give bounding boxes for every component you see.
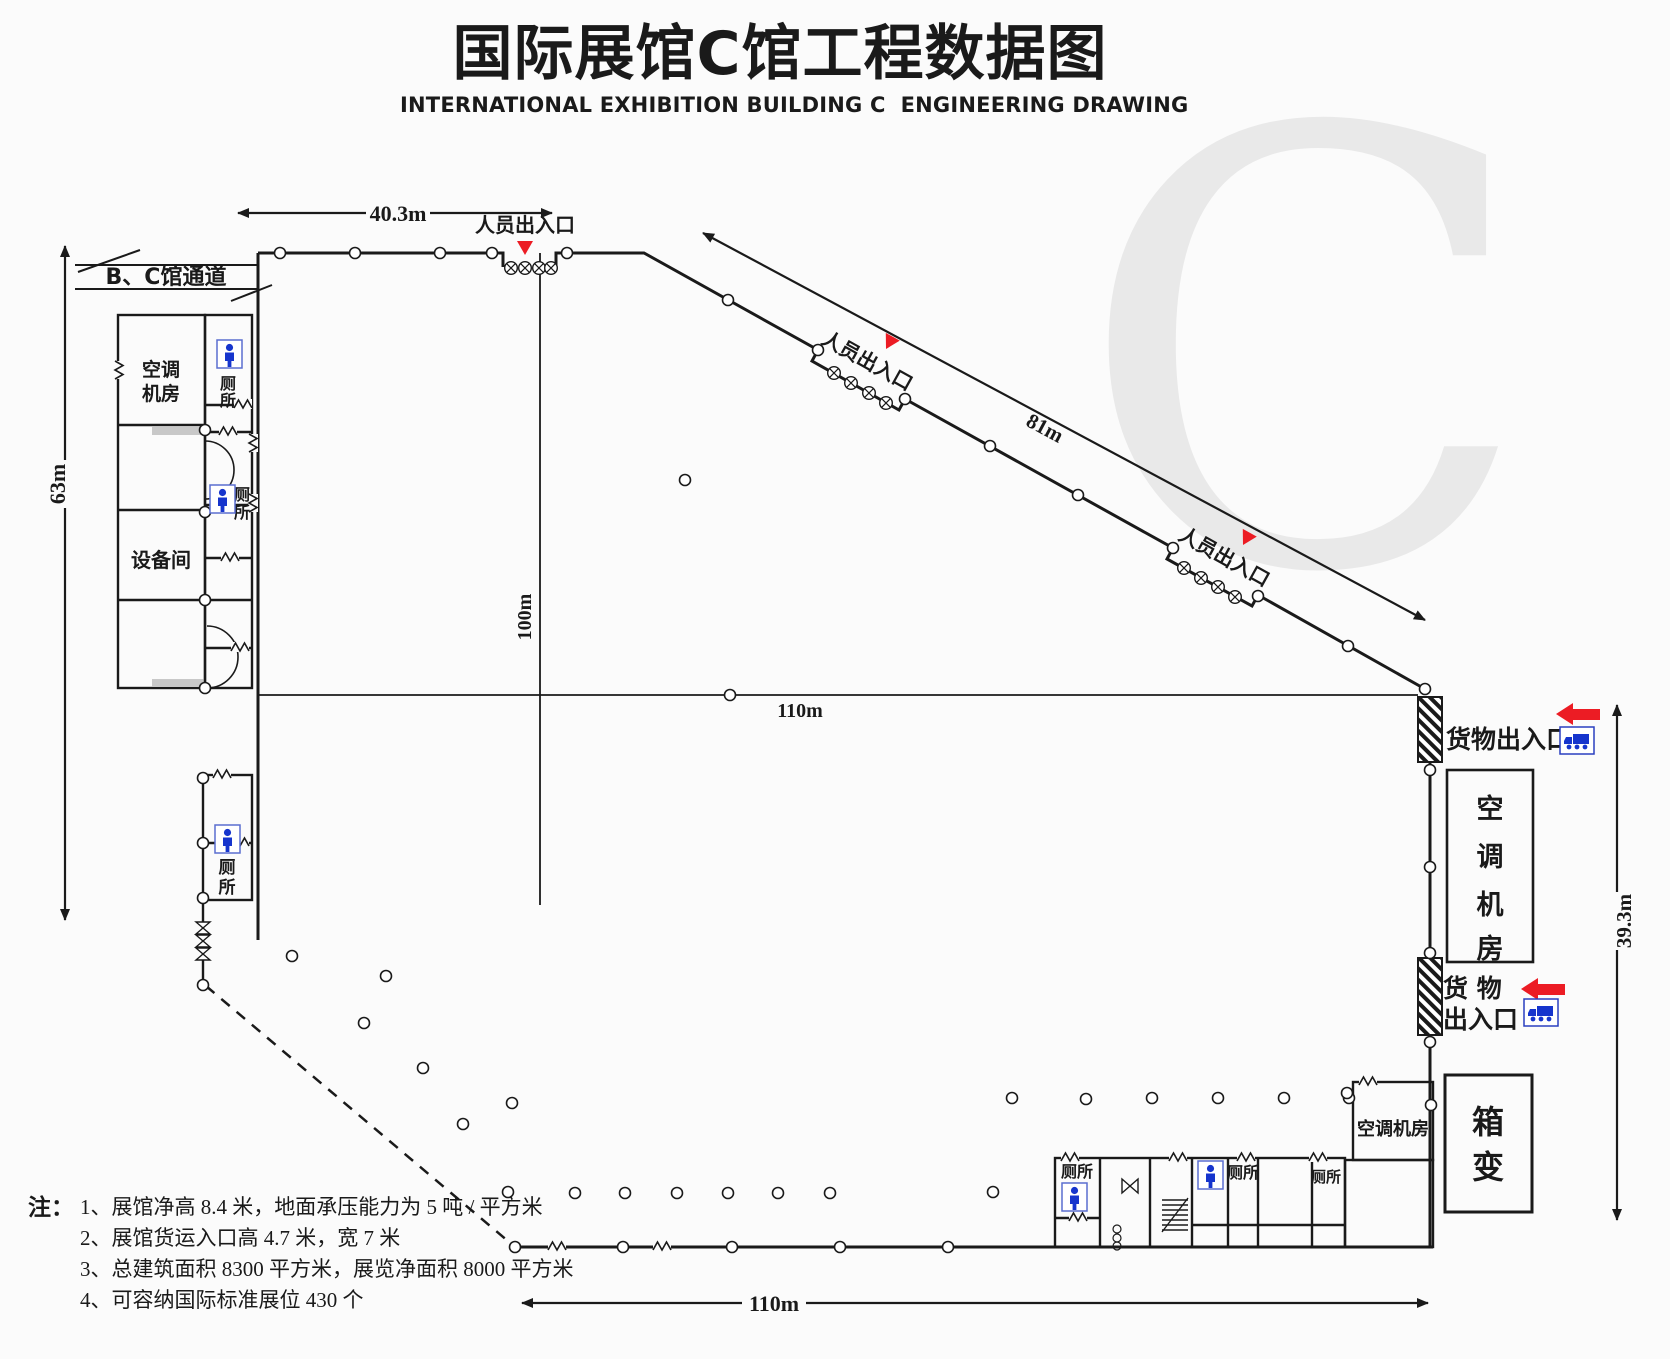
dim-left-height: 63m — [45, 464, 70, 504]
floor-plan: 40.3m 63m 100m 110m 81m 39.3m 110m B、C馆通… — [0, 0, 1670, 1359]
toilet4-label: 厕所 — [1061, 1162, 1093, 1181]
column-markers — [198, 248, 1437, 1253]
ac-room-right-char4: 房 — [1477, 934, 1504, 965]
dim-top-width: 40.3m — [370, 201, 427, 226]
ac-room-right-char1: 空 — [1477, 793, 1504, 825]
title-block: 国际展馆C馆工程数据图 INTERNATIONAL EXHIBITION BUI… — [400, 20, 1160, 117]
dim-right-height: 39.3m — [1612, 893, 1636, 948]
cargo-entrance-label-1: 货物出入口 — [1446, 725, 1571, 754]
ac-room-right-char2: 调 — [1477, 842, 1504, 873]
person-icon — [217, 340, 242, 368]
note-2: 2、展馆货运入口高 4.7 米，宽 7 米 — [80, 1223, 574, 1254]
grey-strip-1 — [152, 427, 205, 435]
passage-label: B、C馆通道 — [106, 264, 227, 290]
grey-strip-2 — [152, 679, 205, 687]
dim-bottom-width: 110m — [749, 1291, 799, 1316]
toilet3-char1: 厕 — [219, 858, 236, 878]
hall-walls — [206, 253, 1433, 1247]
personnel-entrance-1: 人员出入口 — [475, 213, 575, 274]
ac-room-topleft-line2: 机房 — [142, 382, 180, 405]
equipment-room-label: 设备间 — [131, 548, 191, 572]
dim-diagonal: 81m — [1022, 408, 1068, 448]
ac-room-small-label: 空调机房 — [1357, 1118, 1429, 1140]
stairs — [1162, 1198, 1188, 1232]
cargo-entrance-2: 货 物 出入口 — [1443, 974, 1565, 1034]
entrance-arrow-icon — [1236, 529, 1257, 549]
notes-prefix: 注： — [28, 1192, 74, 1223]
person-icon — [1062, 1183, 1087, 1211]
cargo-entrance-label-2a: 货 物 — [1443, 974, 1502, 1003]
person-icon — [215, 825, 240, 853]
toilet1-char2: 所 — [220, 391, 236, 410]
toilet-icons — [210, 340, 1223, 1211]
note-4: 4、可容纳国际标准展位 430 个 — [80, 1285, 574, 1316]
page-subtitle: INTERNATIONAL EXHIBITION BUILDING C ENGI… — [400, 93, 1160, 117]
ac-room-right-char3: 机 — [1477, 890, 1504, 921]
ac-room-topleft-line1: 空调 — [142, 358, 180, 381]
truck-icon — [1524, 999, 1558, 1026]
box-transformer-char1: 箱 — [1472, 1103, 1504, 1141]
page-title: 国际展馆C馆工程数据图 — [400, 20, 1160, 89]
dim-hall-width: 100m — [514, 593, 536, 640]
door-notches — [114, 361, 1377, 1251]
person-icon — [1198, 1161, 1223, 1189]
turnstile-row-1 — [505, 262, 558, 275]
cargo-door-2 — [1418, 958, 1442, 1035]
cargo-arrow-icon — [1521, 978, 1565, 1000]
cargo-entrance-1: 货物出入口 — [1446, 703, 1600, 754]
toilet2-char2: 所 — [234, 503, 250, 522]
toilet6-label: 厕所 — [1311, 1168, 1341, 1186]
toilet2-char1: 厕 — [234, 485, 250, 504]
cargo-entrance-label-2b: 出入口 — [1443, 1005, 1518, 1034]
truck-icon — [1560, 727, 1594, 754]
dim-mid-width: 110m — [777, 700, 823, 722]
cargo-door-1 — [1418, 697, 1442, 762]
note-3: 3、总建筑面积 8300 平方米，展览净面积 8000 平方米 — [80, 1254, 574, 1285]
box-transformer-char2: 变 — [1472, 1148, 1504, 1186]
box-transformer-room — [1445, 1075, 1532, 1212]
drawing-sheet: C 国际展馆C馆工程数据图 INTERNATIONAL EXHIBITION B… — [0, 0, 1670, 1359]
note-1: 1、展馆净高 8.4 米，地面承压能力为 5 吨 / 平方米 — [80, 1192, 574, 1223]
personnel-entrance-label-1: 人员出入口 — [475, 213, 575, 237]
toilet3-char2: 所 — [219, 878, 236, 898]
entrance-arrow-icon — [517, 241, 533, 255]
personnel-entrance-label-3: 人员出入口 — [1175, 522, 1274, 591]
toilet5-label: 厕所 — [1227, 1163, 1259, 1182]
cargo-arrow-icon — [1556, 703, 1600, 725]
person-icon — [210, 485, 235, 513]
turnstile-valves — [196, 922, 1138, 1193]
notes-block: 注： 1、展馆净高 8.4 米，地面承压能力为 5 吨 / 平方米 2、展馆货运… — [28, 1192, 574, 1316]
personnel-entrance-label-2: 人员出入口 — [818, 326, 917, 395]
